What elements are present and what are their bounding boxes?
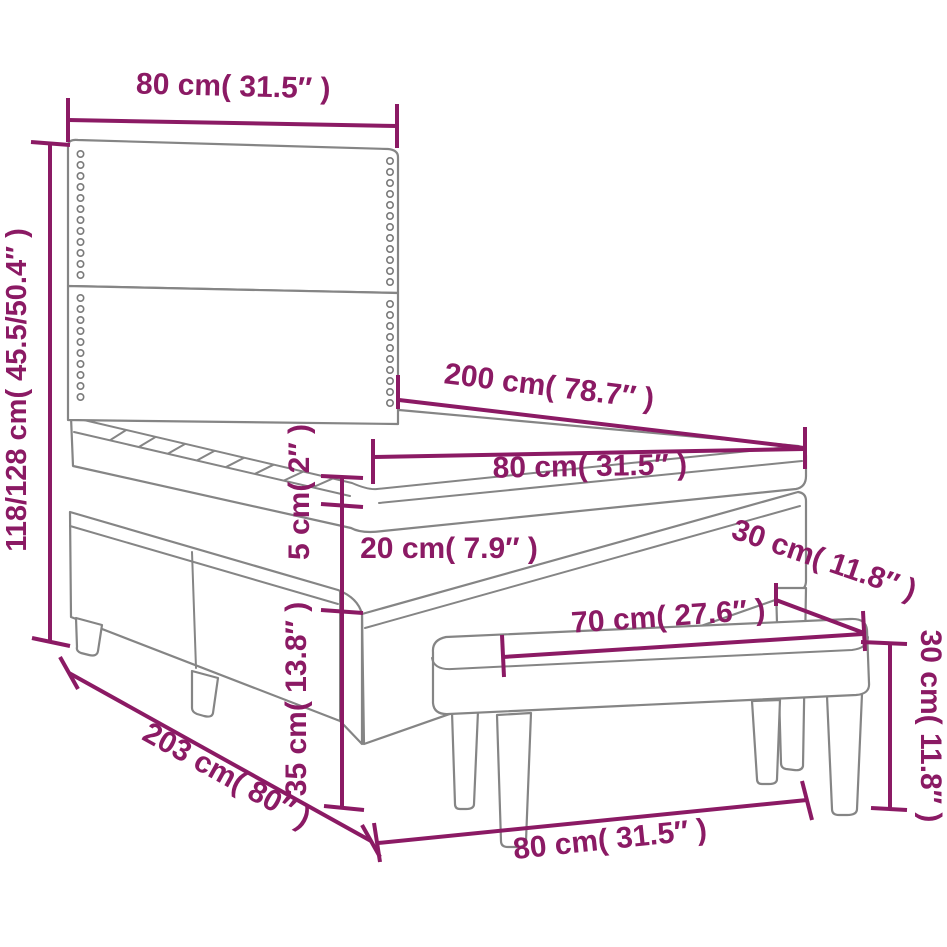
nailhead <box>387 323 393 329</box>
product-dimension-diagram: 80 cm( 31.5″ )118/128 cm( 45.5/50.4″ )20… <box>0 0 947 947</box>
bench-leg <box>752 700 780 784</box>
nailhead <box>77 350 83 356</box>
nailhead <box>387 213 393 219</box>
nailhead <box>387 378 393 384</box>
nailhead <box>387 345 393 351</box>
dimension-label-mattress_thickness: 20 cm( 7.9″ ) <box>360 532 538 565</box>
nailhead <box>387 257 393 263</box>
bed-leg <box>192 671 218 717</box>
nailhead <box>387 334 393 340</box>
nailhead <box>387 312 393 318</box>
nailhead <box>77 250 83 256</box>
nailhead <box>387 158 393 164</box>
nailhead <box>77 217 83 223</box>
nailhead <box>387 400 393 406</box>
nailhead <box>387 202 393 208</box>
nailhead <box>77 162 83 168</box>
nailhead <box>77 383 83 389</box>
pillow-top-mattress <box>71 410 806 532</box>
nailhead <box>387 279 393 285</box>
nailhead <box>77 272 83 278</box>
bed-with-bench-diagram: 80 cm( 31.5″ )118/128 cm( 45.5/50.4″ )20… <box>0 0 947 947</box>
nailhead <box>77 151 83 157</box>
nailhead <box>77 228 83 234</box>
nailhead <box>387 235 393 241</box>
nailhead <box>387 389 393 395</box>
nailhead <box>387 191 393 197</box>
dimension-label-total_height: 118/128 cm( 45.5/50.4″ ) <box>1 228 33 551</box>
nailhead <box>77 339 83 345</box>
dimension-label-base_height: 35 cm( 13.8″ ) <box>280 602 313 796</box>
nailhead <box>387 367 393 373</box>
bench-leg <box>452 711 478 809</box>
nailhead <box>77 372 83 378</box>
dimension-label-bench_height: 30 cm( 11.8″ ) <box>914 630 947 823</box>
nailhead <box>77 206 83 212</box>
nailhead <box>77 394 83 400</box>
dimension-label-headboard_width: 80 cm( 31.5″ ) <box>136 67 331 105</box>
nailhead <box>387 224 393 230</box>
nailhead <box>77 361 83 367</box>
dimension-label-mattress_width: 80 cm( 31.5″ ) <box>492 448 687 484</box>
nailhead <box>77 184 83 190</box>
nailhead <box>77 295 83 301</box>
nailhead <box>387 301 393 307</box>
nailhead <box>77 306 83 312</box>
bench-leg <box>827 694 862 815</box>
nailhead <box>77 328 83 334</box>
nailhead <box>387 356 393 362</box>
nailhead <box>77 317 83 323</box>
nailhead <box>77 261 83 267</box>
headboard <box>68 140 398 424</box>
nailhead <box>387 169 393 175</box>
nailhead <box>77 173 83 179</box>
dimension-label-topper_thickness: 5 cm( 2″ ) <box>283 424 316 560</box>
nailhead <box>77 239 83 245</box>
bed-leg <box>76 618 102 656</box>
nailhead <box>77 195 83 201</box>
nailhead <box>387 268 393 274</box>
nailhead <box>387 180 393 186</box>
nailhead <box>387 246 393 252</box>
